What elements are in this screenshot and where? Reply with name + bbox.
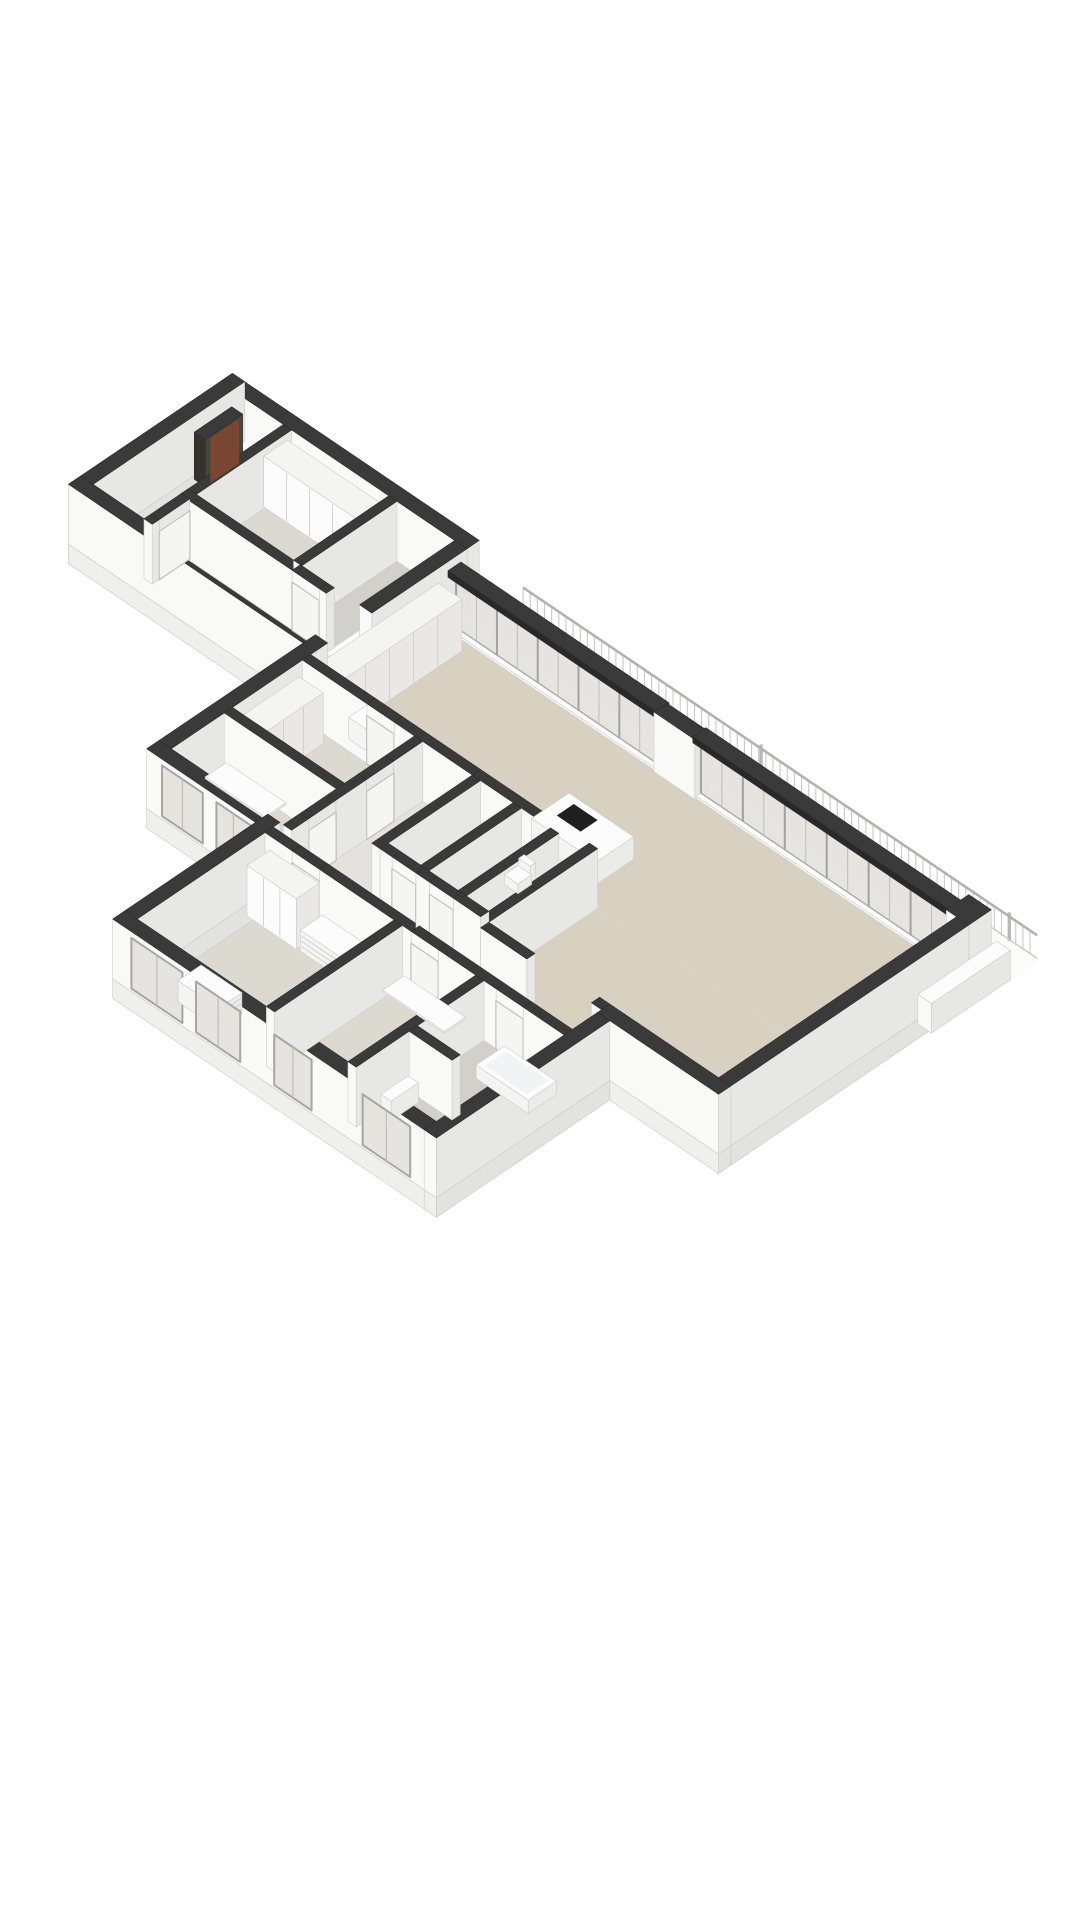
- floorplan-3d-render: [0, 0, 1080, 1920]
- floorplan-page: [0, 0, 1080, 1920]
- vestibule-wall-b: [144, 514, 159, 584]
